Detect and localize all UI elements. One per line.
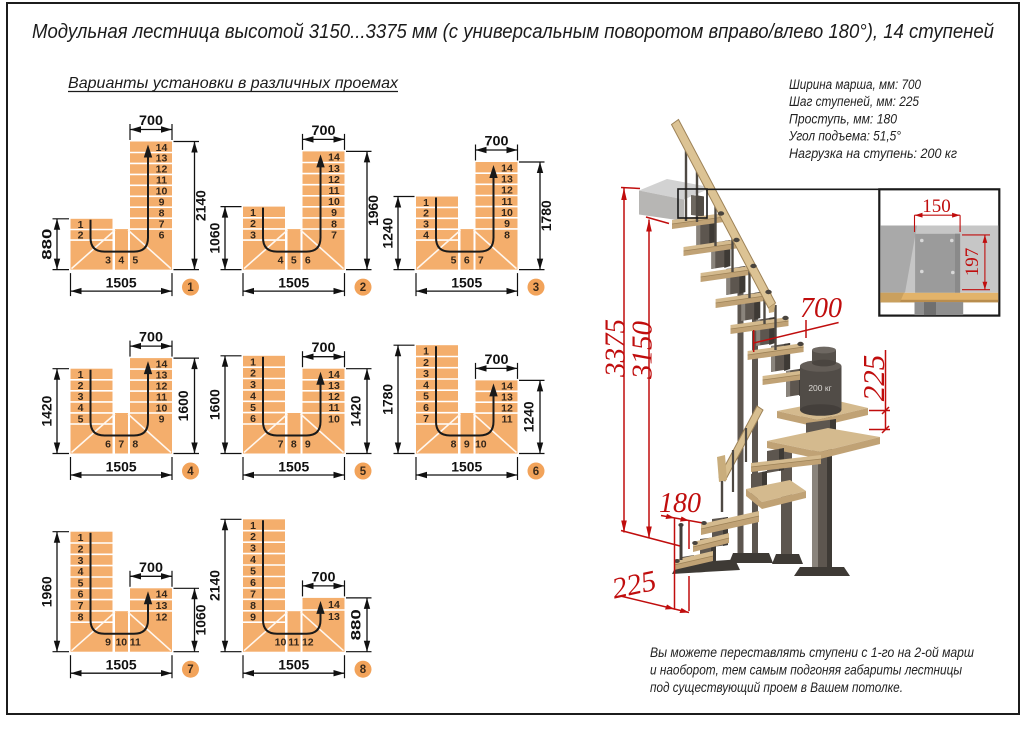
svg-text:Проступь, мм: 180: Проступь, мм: 180 [789,111,897,126]
svg-text:11: 11 [288,637,299,649]
svg-text:225: 225 [856,355,891,402]
svg-text:2: 2 [360,282,366,294]
svg-text:13: 13 [501,174,513,186]
svg-text:6: 6 [105,439,111,451]
svg-text:6: 6 [464,255,470,267]
svg-text:4: 4 [423,379,429,391]
svg-text:1960: 1960 [366,195,381,226]
svg-text:700: 700 [139,113,163,128]
svg-text:1: 1 [187,282,194,294]
svg-text:1: 1 [423,346,429,358]
svg-text:880: 880 [349,609,364,640]
svg-text:Модульная лестница высотой 315: Модульная лестница высотой 3150...3375 м… [32,20,994,43]
svg-text:1505: 1505 [106,460,137,475]
svg-text:2: 2 [423,357,429,369]
svg-text:3150: 3150 [627,321,659,381]
svg-text:8: 8 [78,611,84,623]
svg-text:12: 12 [501,185,513,197]
svg-text:1505: 1505 [106,658,137,673]
svg-text:Шаг ступеней, мм: 225: Шаг ступеней, мм: 225 [789,94,919,109]
svg-text:1505: 1505 [451,460,482,475]
svg-text:8: 8 [360,664,367,676]
svg-text:6: 6 [423,402,429,414]
svg-text:Нагрузка на ступень: 200 кг: Нагрузка на ступень: 200 кг [789,146,957,161]
svg-text:10: 10 [275,637,287,649]
svg-text:5: 5 [250,566,256,578]
svg-text:9: 9 [464,439,470,451]
svg-text:4: 4 [187,466,194,478]
svg-text:14: 14 [156,589,168,601]
svg-text:4: 4 [250,390,256,402]
svg-text:9: 9 [250,611,256,623]
svg-text:3: 3 [250,379,256,391]
svg-text:1960: 1960 [40,576,55,607]
svg-text:200 кг: 200 кг [808,383,831,393]
svg-text:1: 1 [250,207,256,219]
svg-text:и наоборот, тем самым подгоняя: и наоборот, тем самым подгоняя габариты … [650,662,963,678]
svg-text:1240: 1240 [522,401,537,432]
svg-text:4: 4 [78,566,84,578]
svg-text:4: 4 [250,554,256,566]
svg-text:1420: 1420 [349,396,364,427]
svg-text:5: 5 [451,255,457,267]
svg-text:6: 6 [78,589,84,601]
svg-text:1240: 1240 [381,218,396,249]
svg-text:3: 3 [250,543,256,555]
svg-text:12: 12 [302,637,314,649]
svg-text:700: 700 [485,134,509,149]
svg-text:9: 9 [105,637,111,649]
svg-text:7: 7 [78,600,84,612]
svg-text:4: 4 [278,255,284,267]
svg-text:2: 2 [78,230,84,242]
svg-text:1: 1 [250,356,256,368]
svg-text:6: 6 [250,577,256,589]
svg-text:5: 5 [132,255,138,267]
svg-text:4: 4 [423,230,429,242]
svg-text:12: 12 [156,611,168,623]
svg-text:Угол подъема: 51,5°: Угол подъема: 51,5° [788,129,901,144]
svg-text:1780: 1780 [381,384,396,415]
svg-text:1505: 1505 [451,276,482,291]
svg-text:8: 8 [250,600,256,612]
svg-text:1420: 1420 [40,396,55,427]
svg-text:Ширина марша, мм: 700: Ширина марша, мм: 700 [789,77,921,92]
svg-text:7: 7 [250,588,256,600]
svg-text:2: 2 [250,368,256,380]
svg-text:2: 2 [78,544,84,556]
svg-text:700: 700 [312,123,336,138]
svg-text:700: 700 [800,293,842,324]
svg-text:14: 14 [328,599,340,611]
svg-text:8: 8 [291,439,297,451]
svg-text:1: 1 [78,532,84,544]
svg-text:2140: 2140 [208,570,223,601]
svg-text:197: 197 [962,248,983,277]
svg-text:3: 3 [250,229,256,241]
svg-text:7: 7 [278,439,284,451]
svg-text:1060: 1060 [208,223,223,254]
svg-text:13: 13 [156,600,168,612]
svg-text:5: 5 [423,391,429,403]
svg-text:2140: 2140 [194,190,209,221]
svg-text:9: 9 [305,439,311,451]
svg-text:10: 10 [328,413,340,425]
svg-text:6: 6 [159,229,165,241]
svg-text:11: 11 [501,413,512,425]
svg-text:7: 7 [423,413,429,425]
svg-text:8: 8 [132,439,138,451]
svg-text:Вы можете переставлять ступени: Вы можете переставлять ступени с 1-го на… [650,644,974,660]
svg-text:1505: 1505 [278,276,309,291]
svg-text:150: 150 [922,196,951,217]
svg-text:10: 10 [501,207,513,219]
svg-text:10: 10 [115,637,127,649]
svg-text:700: 700 [139,330,163,345]
svg-text:Варианты установки в различных: Варианты установки в различных проемах [68,75,399,92]
svg-text:7: 7 [331,229,337,241]
svg-text:180: 180 [659,488,701,519]
svg-text:700: 700 [312,569,336,584]
svg-text:7: 7 [118,439,124,451]
svg-text:1505: 1505 [278,658,309,673]
svg-text:5: 5 [78,577,84,589]
svg-text:1505: 1505 [278,460,309,475]
svg-text:880: 880 [40,229,55,260]
svg-text:700: 700 [312,340,336,355]
svg-text:5: 5 [291,255,297,267]
svg-text:5: 5 [78,413,84,425]
svg-text:7: 7 [187,664,193,676]
svg-text:1: 1 [250,520,256,532]
svg-text:1600: 1600 [208,389,223,420]
svg-text:10: 10 [475,439,487,451]
svg-text:1060: 1060 [194,605,209,636]
svg-text:13: 13 [328,611,340,623]
svg-text:7: 7 [478,255,484,267]
svg-text:6: 6 [533,466,539,478]
svg-text:1780: 1780 [539,200,554,231]
svg-text:2: 2 [250,531,256,543]
svg-text:8: 8 [451,439,457,451]
svg-text:3: 3 [423,368,429,380]
svg-text:5: 5 [250,402,256,414]
svg-text:8: 8 [504,229,510,241]
svg-text:1505: 1505 [106,276,137,291]
svg-text:700: 700 [139,560,163,575]
svg-text:3: 3 [533,282,539,294]
svg-text:6: 6 [250,413,256,425]
svg-text:3: 3 [78,555,84,567]
svg-text:11: 11 [130,637,141,649]
svg-text:700: 700 [485,352,509,367]
svg-text:под существующий проем в Вашем: под существующий проем в Вашем потолке. [650,679,903,695]
svg-text:5: 5 [360,466,367,478]
svg-text:6: 6 [305,255,311,267]
svg-text:4: 4 [118,255,124,267]
svg-text:9: 9 [159,413,165,425]
svg-text:3: 3 [105,255,111,267]
svg-text:1600: 1600 [176,390,191,421]
